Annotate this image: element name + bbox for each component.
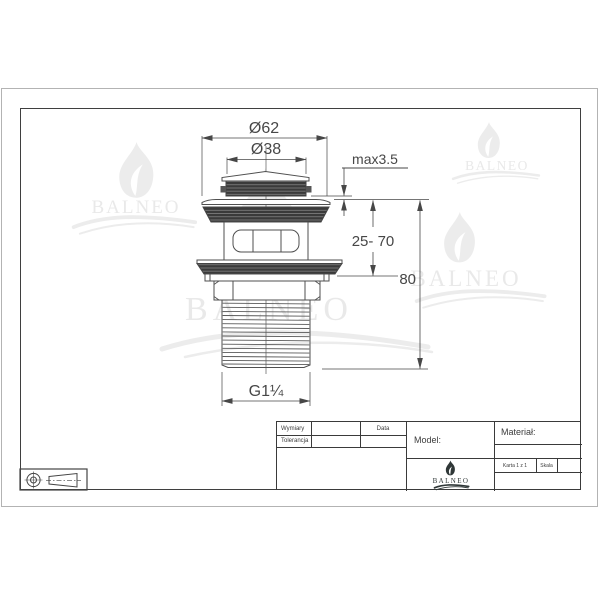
- drain-fitting-view: [197, 146, 342, 374]
- dim-max-thickness: max3.5: [311, 151, 429, 216]
- seal-strip: [197, 260, 342, 264]
- title-block: Wymiary Tolerancja Data Model: Materiał:…: [276, 421, 581, 490]
- dim-label: max3.5: [352, 151, 398, 167]
- dim-label: Ø62: [249, 120, 279, 137]
- dim-label: G1¼: [249, 383, 284, 400]
- karta-label: Karta 1 z 1: [494, 463, 536, 469]
- dim-label: Ø38: [251, 141, 281, 158]
- flange-band: [203, 207, 329, 222]
- skala-label: Skala: [536, 463, 557, 469]
- grid-line: [557, 458, 558, 472]
- wymiary-label: Wymiary: [281, 426, 304, 432]
- cap-band: [226, 181, 306, 196]
- dim-height-range: 25- 70: [337, 201, 398, 277]
- dim-cap-diameter: Ø38: [227, 141, 306, 174]
- watermark-text: BALNEO: [91, 197, 180, 218]
- balneo-logo: BALNEO: [406, 458, 494, 491]
- grid-line: [277, 435, 406, 436]
- technical-drawing: BALNEO BALNEO BALNEO BA: [0, 0, 600, 600]
- seal-band: [197, 264, 342, 275]
- material-label: Materiał:: [501, 427, 536, 437]
- overflow-window: [233, 230, 299, 252]
- hex-nut: [214, 281, 320, 300]
- model-label: Model:: [414, 435, 441, 445]
- watermark-top-right: BALNEO: [453, 122, 539, 183]
- dim-label: 25- 70: [352, 233, 395, 250]
- tolerancja-label: Tolerancja: [281, 438, 308, 444]
- grid-line: [494, 444, 582, 445]
- grid-line: [494, 472, 582, 473]
- dim-thread-size: G1¼: [222, 372, 310, 406]
- watermark-top-left: BALNEO: [74, 142, 196, 234]
- logo-text: BALNEO: [433, 477, 470, 485]
- watermark-right: BALNEO: [410, 212, 544, 308]
- washer: [205, 274, 329, 281]
- watermark-text: BALNEO: [465, 158, 529, 173]
- dim-label: 80: [399, 271, 416, 288]
- flange-plate: [202, 200, 330, 205]
- cap-top: [222, 172, 309, 182]
- first-angle-projection-symbol: [20, 469, 87, 490]
- grid-line: [494, 422, 495, 491]
- watermark-text: BALNEO: [410, 266, 521, 291]
- data-label: Data: [360, 426, 406, 432]
- grid-line: [277, 447, 406, 448]
